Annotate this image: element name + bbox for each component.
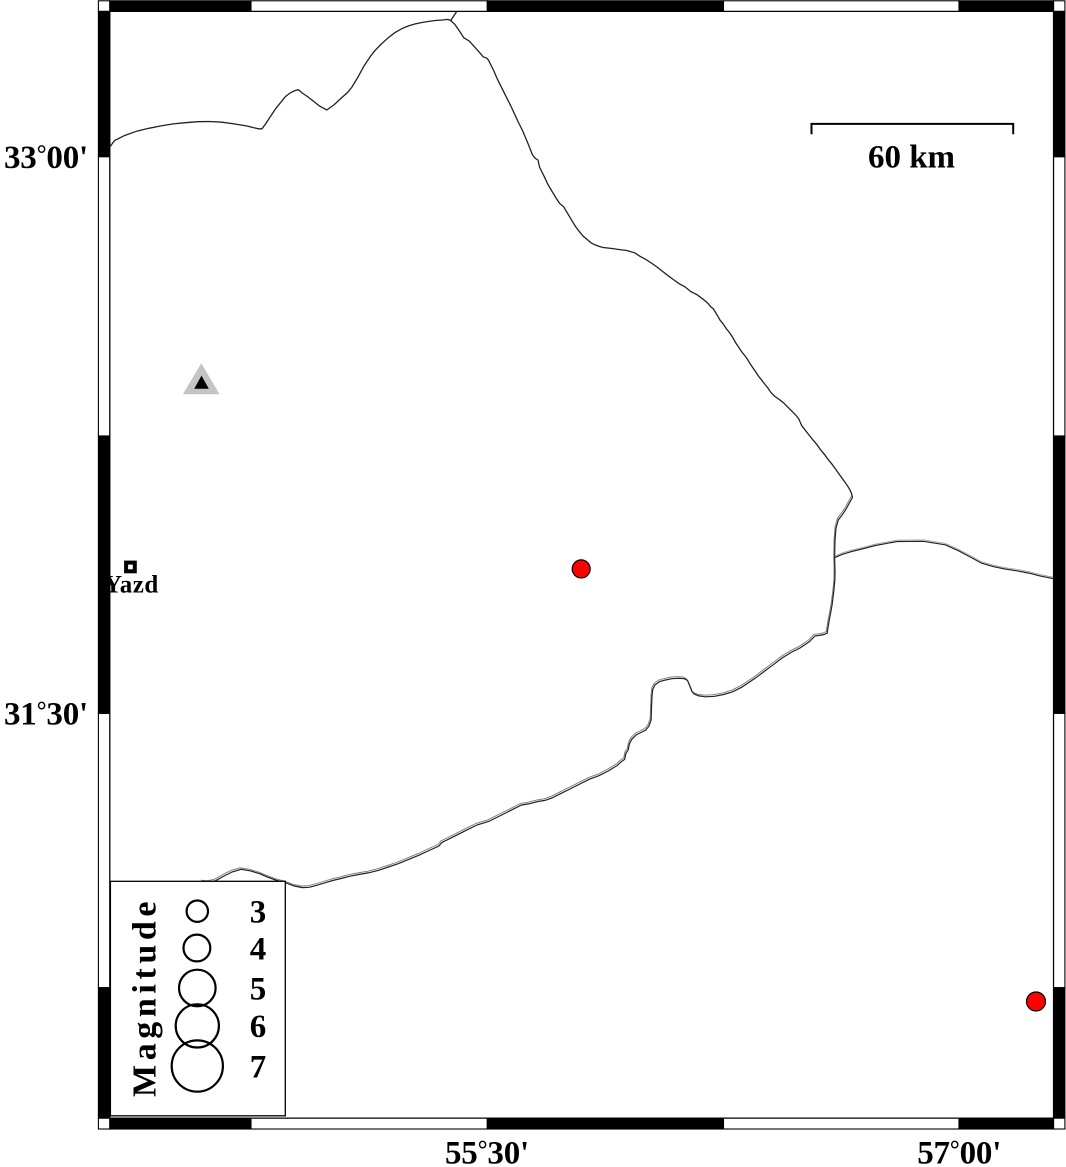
svg-text:60 km: 60 km — [868, 140, 955, 176]
svg-text:3: 3 — [250, 895, 267, 931]
svg-text:55°30': 55°30' — [445, 1136, 529, 1167]
svg-text:7: 7 — [250, 1049, 267, 1085]
svg-text:5: 5 — [250, 971, 267, 1007]
svg-text:Yazd: Yazd — [104, 572, 159, 599]
svg-text:33°00': 33°00' — [4, 140, 88, 176]
svg-text:31°30': 31°30' — [4, 696, 88, 732]
svg-text:4: 4 — [250, 931, 267, 967]
svg-text:Magnitude: Magnitude — [127, 897, 164, 1097]
svg-text:6: 6 — [250, 1009, 267, 1045]
svg-text:57°00': 57°00' — [917, 1136, 1001, 1167]
